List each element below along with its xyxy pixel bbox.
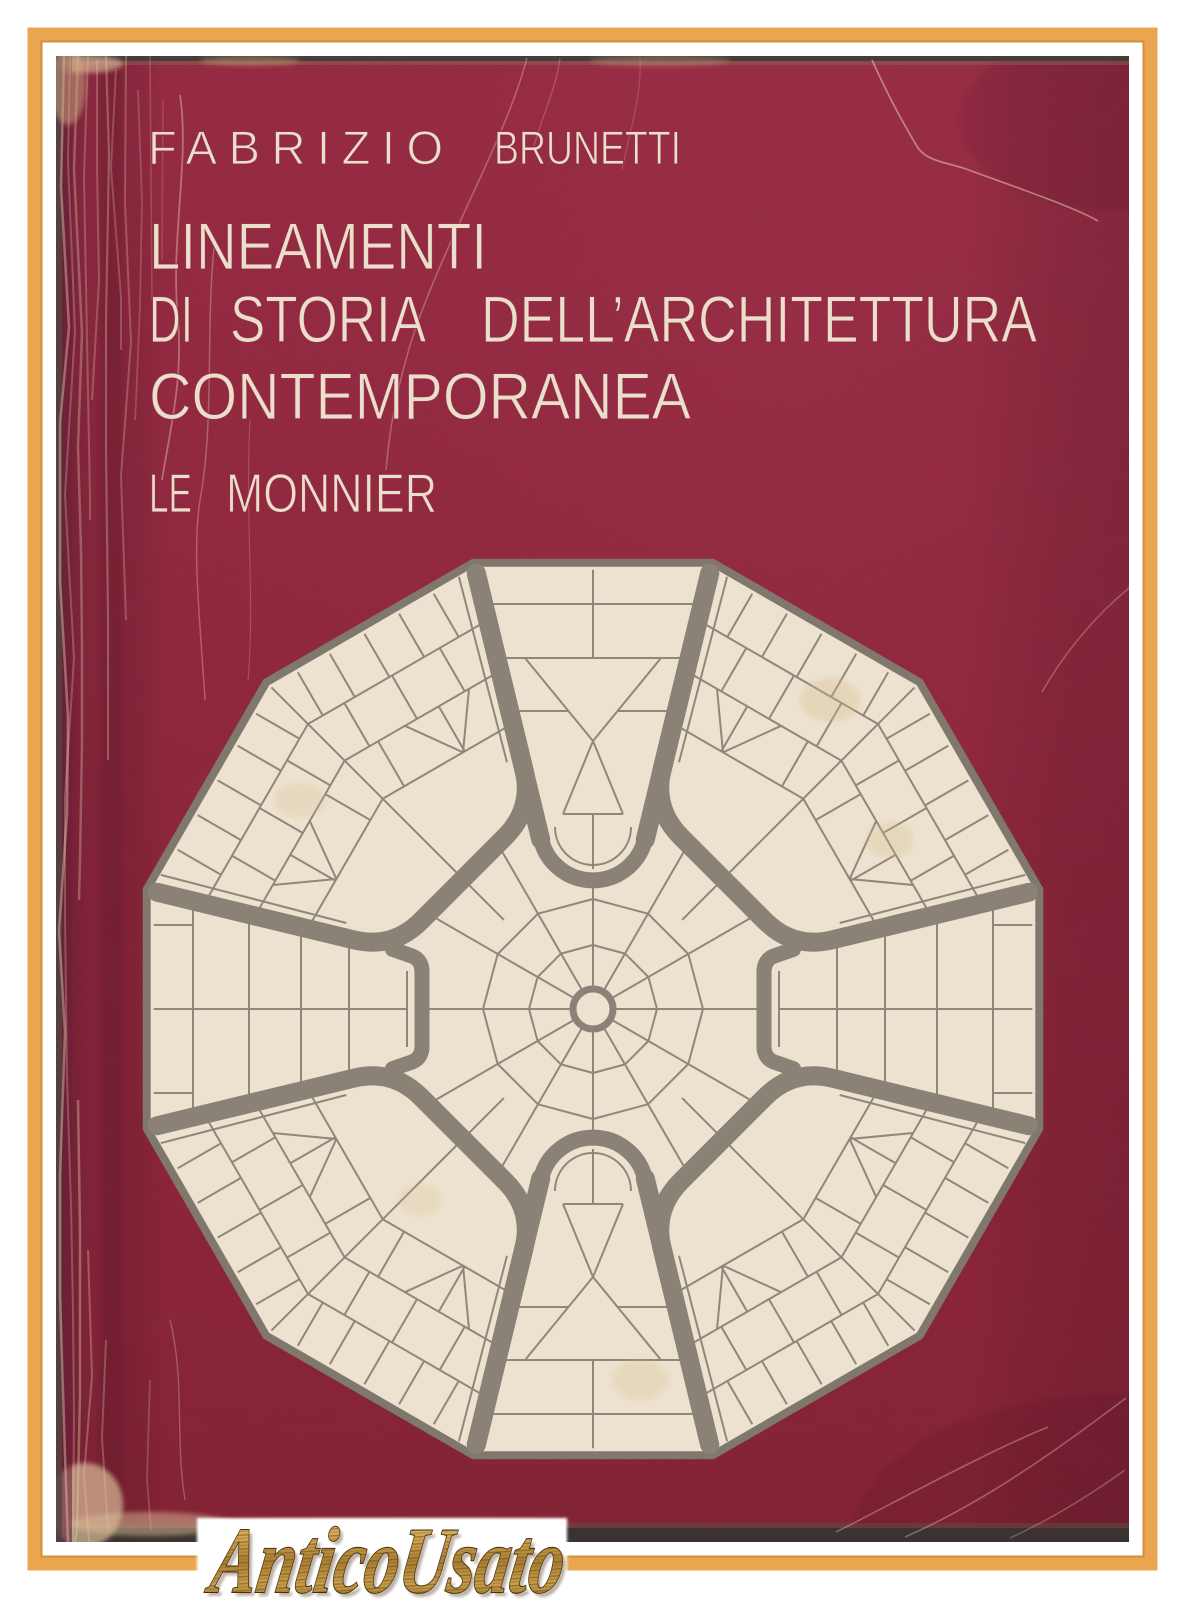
svg-text:LINEAMENTI: LINEAMENTI [149, 209, 487, 283]
svg-text:LE: LE [149, 462, 192, 524]
svg-text:MONNIER: MONNIER [226, 462, 437, 524]
svg-text:STORIA: STORIA [230, 282, 426, 356]
svg-text:BRUNETTI: BRUNETTI [494, 121, 681, 174]
svg-text:DI: DI [149, 282, 193, 356]
svg-text:DELL’ARCHITETTURA: DELL’ARCHITETTURA [481, 282, 1037, 356]
svg-text:CONTEMPORANEA: CONTEMPORANEA [149, 359, 691, 433]
svg-text:AnticoUsato: AnticoUsato [201, 1510, 573, 1600]
